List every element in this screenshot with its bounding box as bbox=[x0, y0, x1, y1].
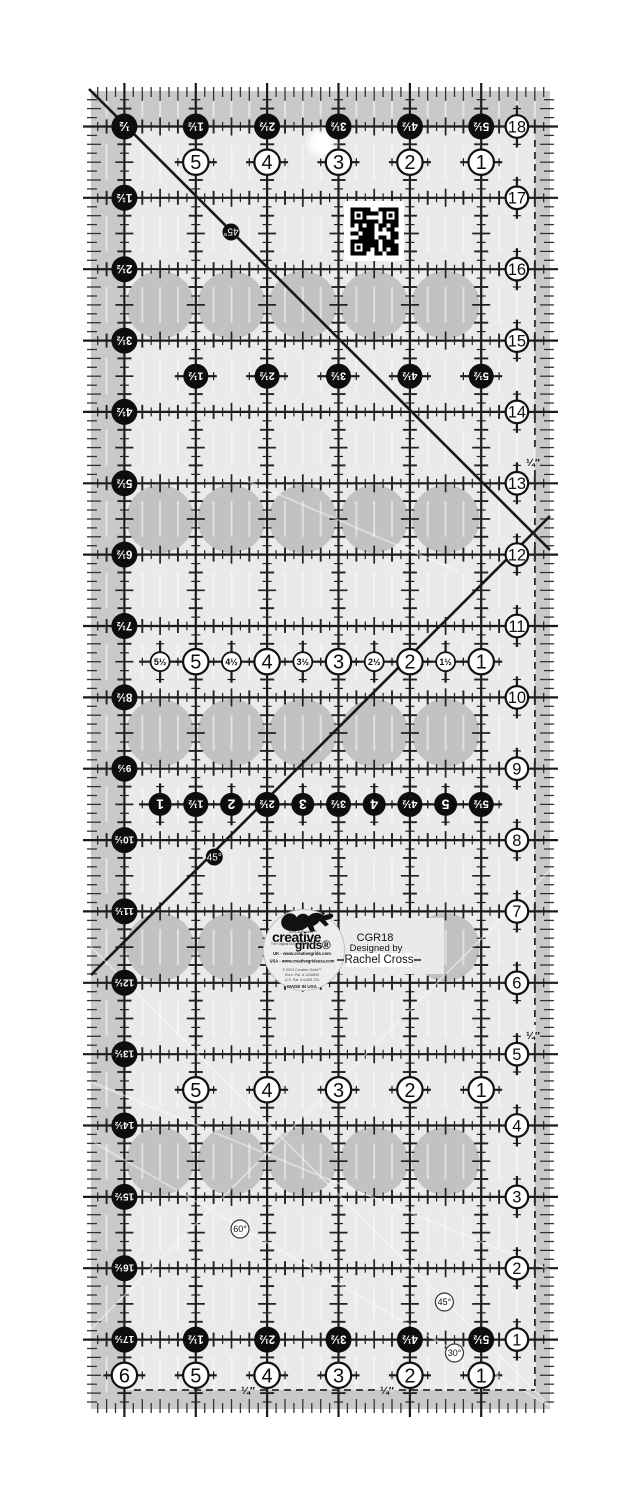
svg-text:2: 2 bbox=[404, 1080, 415, 1102]
svg-text:5: 5 bbox=[190, 1365, 201, 1387]
svg-text:1½: 1½ bbox=[187, 119, 203, 131]
svg-text:1: 1 bbox=[512, 1331, 521, 1349]
svg-text:5½: 5½ bbox=[154, 657, 167, 667]
svg-text:5: 5 bbox=[190, 652, 201, 674]
svg-text:5½: 5½ bbox=[473, 1333, 489, 1345]
svg-text:3½: 3½ bbox=[330, 1333, 346, 1345]
svg-text:¼″: ¼″ bbox=[241, 1385, 255, 1397]
svg-text:Designed by: Designed by bbox=[350, 943, 403, 954]
svg-text:16½: 16½ bbox=[115, 1262, 134, 1273]
svg-text:4: 4 bbox=[262, 652, 273, 674]
svg-text:UK - www.creativegrids.com: UK - www.creativegrids.com bbox=[273, 951, 331, 956]
svg-text:18: 18 bbox=[508, 118, 526, 136]
svg-text:1: 1 bbox=[476, 652, 487, 674]
svg-text:15½: 15½ bbox=[115, 1190, 134, 1201]
svg-text:6: 6 bbox=[512, 975, 521, 993]
svg-text:½: ½ bbox=[119, 119, 130, 134]
svg-text:17: 17 bbox=[508, 190, 526, 208]
svg-text:1: 1 bbox=[156, 797, 164, 813]
svg-text:5½: 5½ bbox=[116, 476, 132, 488]
svg-text:12½: 12½ bbox=[115, 976, 134, 987]
svg-text:45°: 45° bbox=[207, 853, 222, 864]
svg-text:13: 13 bbox=[508, 475, 526, 493]
svg-text:1½: 1½ bbox=[187, 1333, 203, 1345]
svg-text:© 2013 Creative Grids™: © 2013 Creative Grids™ bbox=[282, 968, 321, 972]
svg-text:1½: 1½ bbox=[188, 369, 203, 381]
svg-text:13½: 13½ bbox=[115, 1048, 134, 1059]
svg-text:45°: 45° bbox=[438, 1297, 452, 1307]
svg-text:3: 3 bbox=[333, 1080, 344, 1102]
svg-text:4½: 4½ bbox=[402, 369, 417, 381]
svg-text:1: 1 bbox=[476, 1080, 487, 1102]
svg-text:7½: 7½ bbox=[116, 619, 132, 631]
svg-text:8: 8 bbox=[512, 832, 521, 850]
svg-text:15: 15 bbox=[508, 332, 526, 350]
svg-text:3½: 3½ bbox=[297, 657, 310, 667]
svg-text:MADE IN USA: MADE IN USA bbox=[287, 984, 318, 989]
svg-text:3½: 3½ bbox=[330, 119, 346, 131]
svg-text:11½: 11½ bbox=[115, 905, 134, 916]
svg-text:2: 2 bbox=[404, 152, 415, 174]
svg-text:5½: 5½ bbox=[474, 369, 489, 381]
svg-text:3: 3 bbox=[299, 797, 307, 813]
svg-text:60°: 60° bbox=[233, 1224, 247, 1234]
svg-text:3½: 3½ bbox=[331, 798, 346, 810]
svg-text:4½: 4½ bbox=[402, 798, 417, 810]
svg-text:3: 3 bbox=[333, 152, 344, 174]
svg-text:9: 9 bbox=[512, 760, 521, 778]
svg-text:6: 6 bbox=[119, 1365, 130, 1387]
svg-text:4: 4 bbox=[370, 797, 378, 813]
svg-text:8½: 8½ bbox=[116, 690, 132, 702]
svg-text:3: 3 bbox=[333, 652, 344, 674]
svg-text:2: 2 bbox=[227, 797, 235, 813]
svg-text:1: 1 bbox=[476, 152, 487, 174]
svg-text:5: 5 bbox=[190, 152, 201, 174]
svg-text:1½: 1½ bbox=[439, 657, 452, 667]
svg-text:The Original NON-SLIP Ruler: The Original NON-SLIP Ruler bbox=[271, 942, 314, 946]
svg-text:2: 2 bbox=[404, 1365, 415, 1387]
svg-text:4: 4 bbox=[262, 152, 273, 174]
svg-text:5: 5 bbox=[441, 797, 449, 813]
svg-text:4½: 4½ bbox=[402, 1333, 418, 1345]
svg-text:5: 5 bbox=[512, 1046, 521, 1064]
svg-text:14½: 14½ bbox=[115, 1119, 134, 1130]
svg-text:¼″: ¼″ bbox=[380, 1385, 394, 1397]
svg-text:4½: 4½ bbox=[116, 405, 132, 417]
svg-text:7: 7 bbox=[512, 903, 521, 921]
svg-text:4½: 4½ bbox=[402, 119, 418, 131]
svg-text:1½: 1½ bbox=[116, 191, 132, 203]
svg-text:10½: 10½ bbox=[115, 834, 134, 845]
svg-text:30°: 30° bbox=[448, 1348, 462, 1358]
svg-text:10: 10 bbox=[508, 689, 526, 707]
svg-text:4½: 4½ bbox=[225, 657, 238, 667]
svg-text:14: 14 bbox=[508, 404, 526, 422]
svg-text:¼″: ¼″ bbox=[526, 1030, 540, 1042]
svg-text:1½: 1½ bbox=[188, 798, 203, 810]
svg-text:USA - www.creativegridsusa.com: USA - www.creativegridsusa.com bbox=[270, 959, 335, 964]
svg-text:2½: 2½ bbox=[368, 657, 381, 667]
svg-text:3½: 3½ bbox=[331, 369, 346, 381]
svg-text:1: 1 bbox=[476, 1365, 487, 1387]
svg-text:¼″: ¼″ bbox=[526, 457, 540, 469]
svg-text:2½: 2½ bbox=[259, 798, 274, 810]
svg-text:4: 4 bbox=[262, 1080, 273, 1102]
svg-text:3½: 3½ bbox=[116, 334, 132, 346]
svg-text:5½: 5½ bbox=[473, 119, 489, 131]
svg-text:Euro. Pat. # 1228695: Euro. Pat. # 1228695 bbox=[285, 973, 319, 977]
svg-text:3: 3 bbox=[333, 1365, 344, 1387]
svg-text:16: 16 bbox=[508, 261, 526, 279]
svg-text:5: 5 bbox=[190, 1080, 201, 1102]
svg-text:2½: 2½ bbox=[116, 262, 132, 274]
svg-text:17½: 17½ bbox=[115, 1333, 134, 1344]
svg-text:2½: 2½ bbox=[259, 119, 275, 131]
svg-text:2½: 2½ bbox=[259, 369, 274, 381]
svg-text:6½: 6½ bbox=[116, 548, 132, 560]
svg-text:4: 4 bbox=[512, 1117, 521, 1135]
svg-text:12: 12 bbox=[508, 546, 526, 564]
svg-text:2½: 2½ bbox=[259, 1333, 275, 1345]
svg-text:9½: 9½ bbox=[117, 762, 131, 773]
svg-text:2: 2 bbox=[512, 1260, 521, 1278]
svg-text:5½: 5½ bbox=[474, 798, 489, 810]
svg-text:Rachel Cross: Rachel Cross bbox=[344, 954, 413, 966]
svg-text:U.S. Pat. # 6,655,724: U.S. Pat. # 6,655,724 bbox=[285, 978, 319, 982]
svg-text:11: 11 bbox=[508, 618, 525, 636]
svg-text:3: 3 bbox=[512, 1189, 521, 1207]
svg-text:2: 2 bbox=[404, 652, 415, 674]
svg-text:4: 4 bbox=[262, 1365, 273, 1387]
svg-text:45°: 45° bbox=[223, 226, 238, 237]
